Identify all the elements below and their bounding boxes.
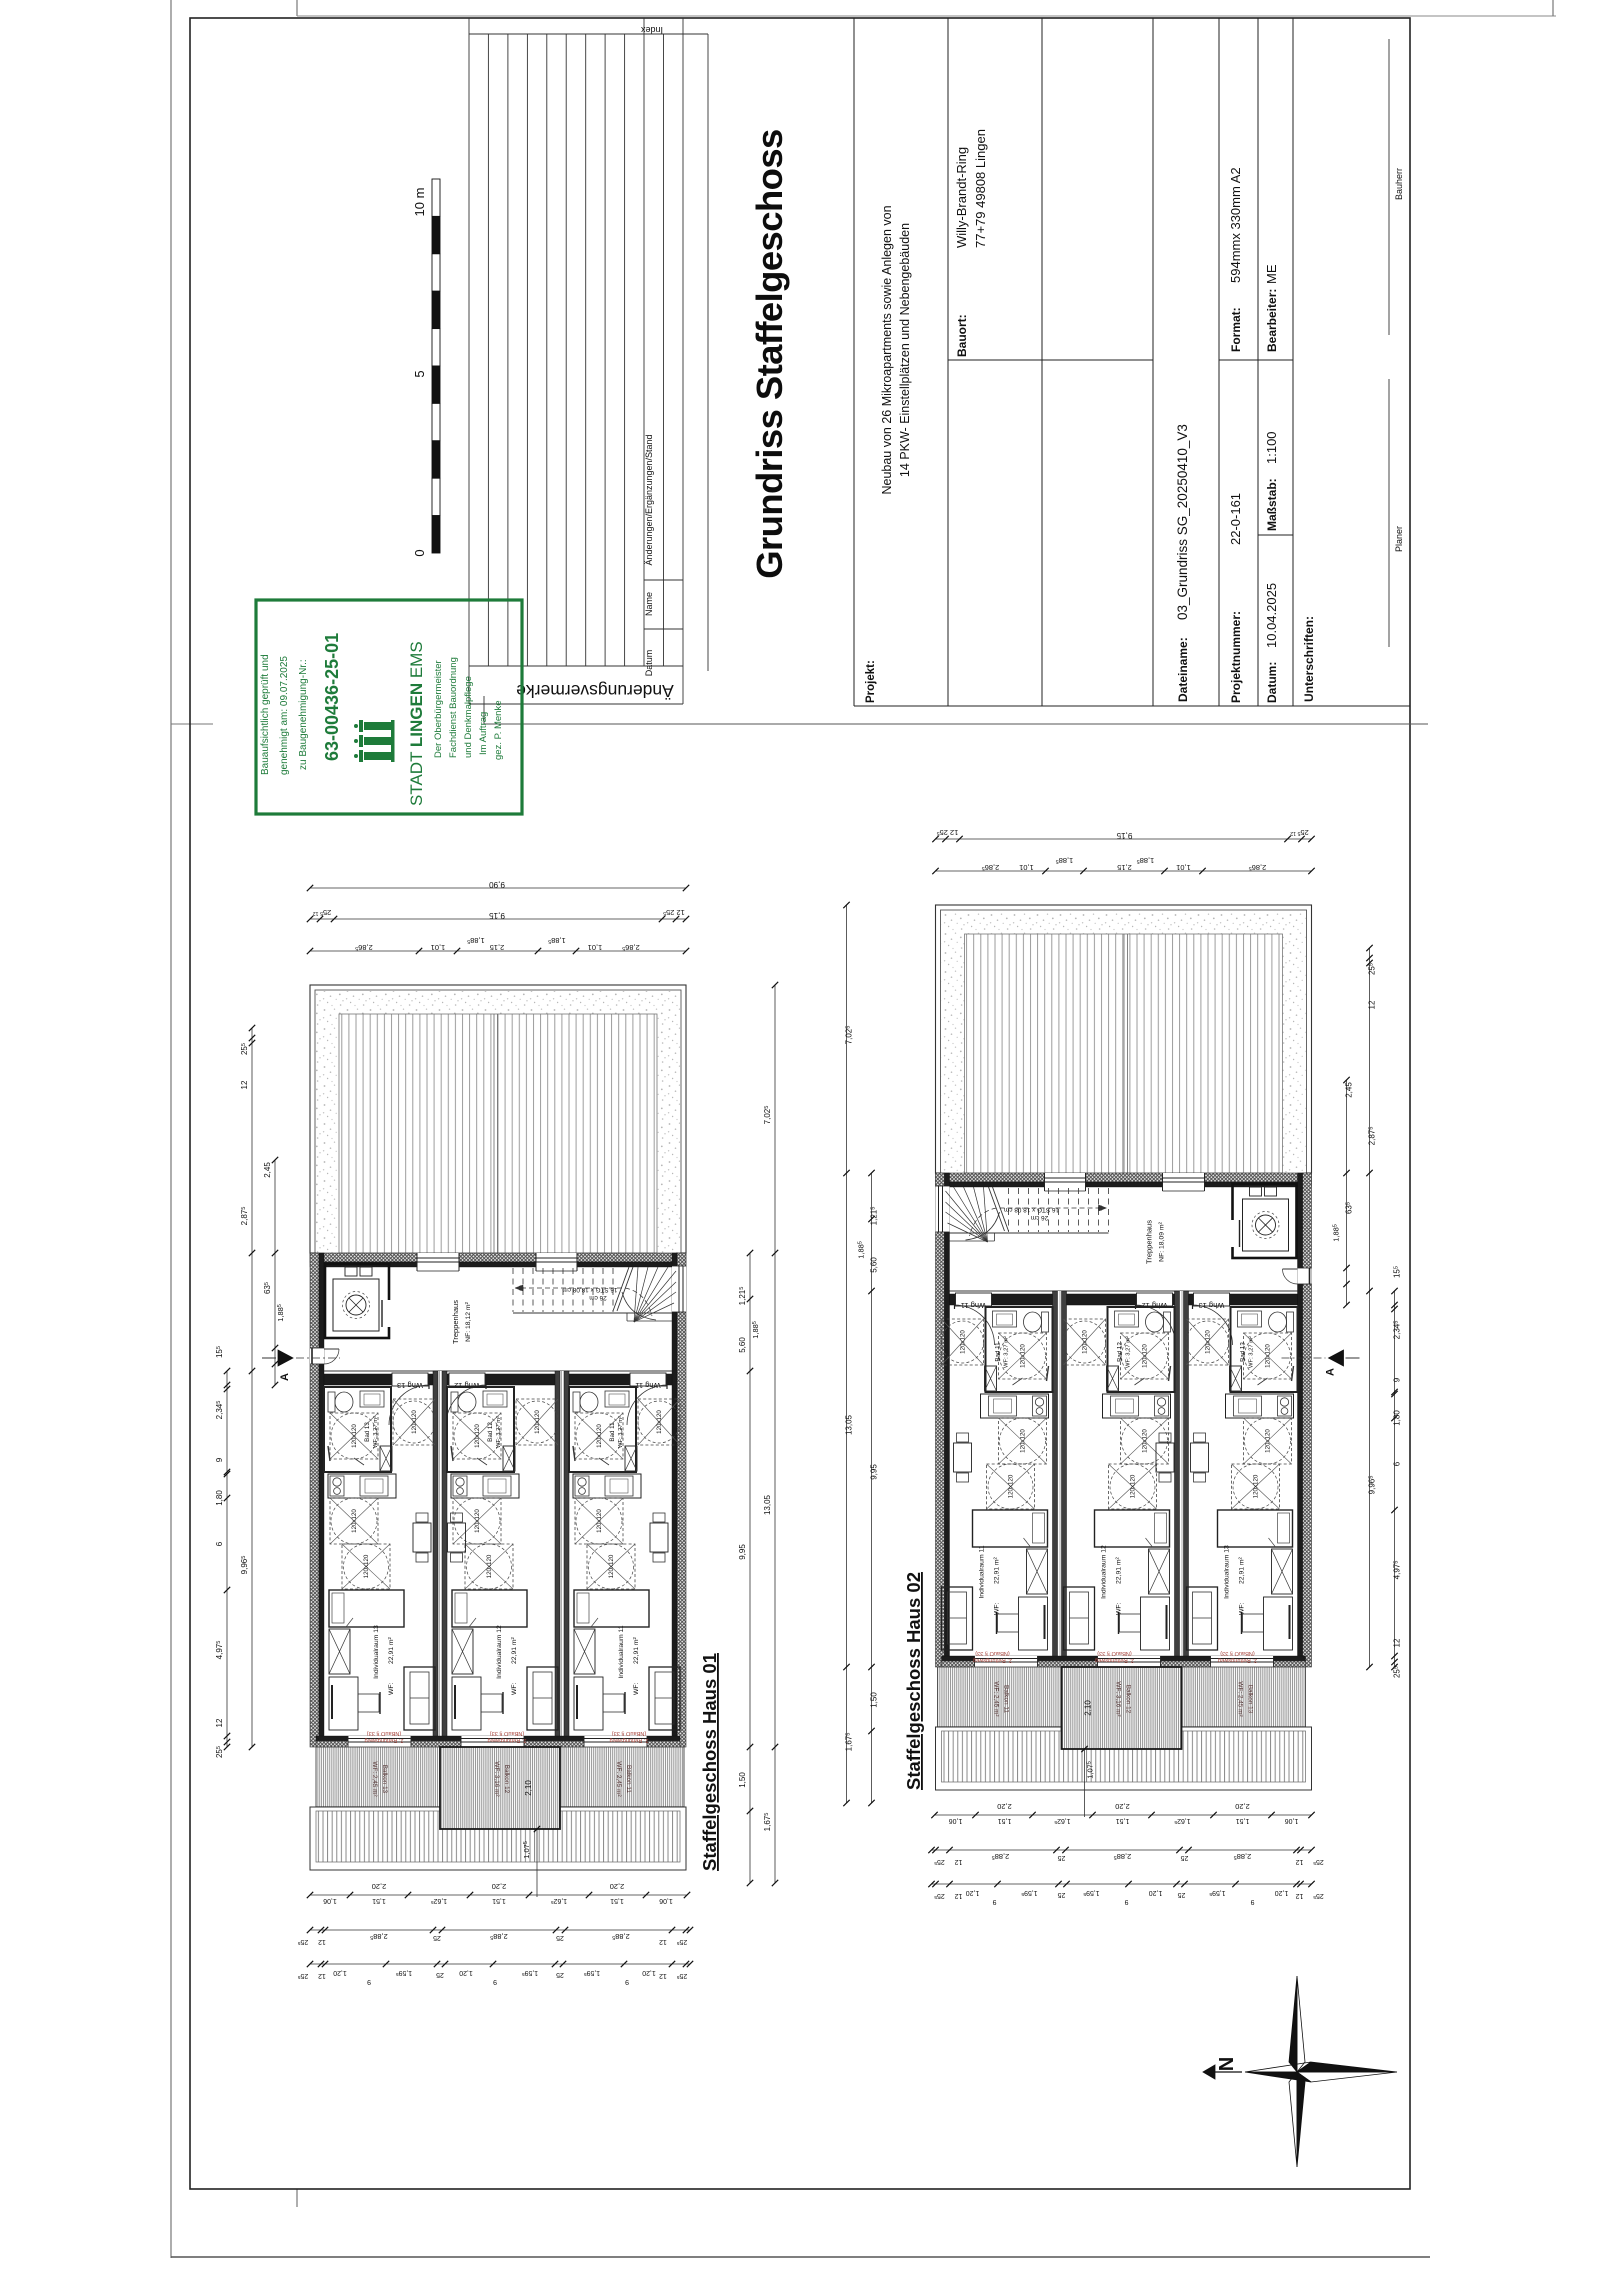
svg-text:1,20: 1,20 — [966, 1889, 980, 1896]
svg-text:WF: 2,45 m²: WF: 2,45 m² — [371, 1761, 378, 1796]
svg-text:Änderungsvermerke: Änderungsvermerke — [516, 681, 674, 701]
svg-text:2,20: 2,20 — [1235, 1802, 1250, 1811]
svg-text:0: 0 — [412, 549, 427, 556]
svg-text:120x120: 120x120 — [1082, 1330, 1089, 1354]
svg-text:120x120: 120x120 — [351, 1509, 358, 1533]
svg-text:Bad 12: Bad 12 — [487, 1422, 494, 1442]
svg-text:25: 25 — [1058, 1891, 1066, 1898]
svg-text:Änderungen/Ergänzungen/Stand: Änderungen/Ergänzungen/Stand — [644, 434, 654, 565]
svg-text:2. Rettungsweg: 2. Rettungsweg — [973, 1657, 1012, 1663]
svg-text:120x120: 120x120 — [1253, 1474, 1260, 1498]
svg-text:Neubau von 26 Mikroapartments: Neubau von 26 Mikroapartments sowie Anle… — [880, 205, 894, 494]
svg-text:2,45: 2,45 — [263, 1162, 272, 1178]
svg-text:(NBauO § 33): (NBauO § 33) — [490, 1730, 525, 1736]
svg-text:25: 25 — [556, 1934, 564, 1941]
svg-text:WF: 2,45 m²: WF: 2,45 m² — [993, 1681, 1000, 1716]
svg-text:120x120: 120x120 — [1265, 1429, 1272, 1453]
svg-text:12: 12 — [215, 1718, 224, 1727]
svg-text:Projektnummer:: Projektnummer: — [1229, 611, 1243, 703]
svg-text:12: 12 — [1296, 1858, 1304, 1865]
svg-text:120x120: 120x120 — [411, 1410, 418, 1434]
svg-text:WF: 3,27 m²: WF: 3,27 m² — [496, 1416, 502, 1448]
svg-text:WF: 3,27 m²: WF: 3,27 m² — [1126, 1336, 1132, 1368]
svg-text:1,51: 1,51 — [1116, 1817, 1130, 1824]
svg-text:1,01: 1,01 — [1019, 863, 1034, 872]
svg-text:Bad 11: Bad 11 — [609, 1422, 616, 1442]
svg-text:25: 25 — [433, 1934, 441, 1941]
svg-text:1,20: 1,20 — [1275, 1889, 1289, 1896]
svg-text:25: 25 — [1181, 1854, 1189, 1861]
svg-text:1,51: 1,51 — [492, 1897, 506, 1904]
svg-text:12: 12 — [955, 1892, 963, 1899]
svg-text:Individualraum 13: Individualraum 13 — [373, 1625, 380, 1679]
svg-text:2,20: 2,20 — [997, 1802, 1012, 1811]
svg-text:9,15: 9,15 — [489, 911, 505, 920]
svg-text:120x120: 120x120 — [486, 1554, 493, 1578]
svg-text:13,05: 13,05 — [845, 1414, 854, 1435]
svg-text:120x120: 120x120 — [474, 1424, 481, 1448]
svg-text:2,10: 2,10 — [524, 1780, 533, 1796]
svg-text:Whg 13: Whg 13 — [397, 1381, 423, 1390]
svg-text:Bauherr: Bauherr — [1394, 168, 1404, 200]
svg-text:25: 25 — [1058, 1854, 1066, 1861]
svg-text:1,80: 1,80 — [1393, 1410, 1402, 1426]
svg-text:Bauaufsichtlich geprüft und: Bauaufsichtlich geprüft und — [260, 654, 271, 775]
svg-text:2,45: 2,45 — [1345, 1082, 1354, 1098]
svg-text:Treppenhaus: Treppenhaus — [1145, 1220, 1154, 1264]
svg-text:WF:: WF: — [633, 1682, 640, 1695]
svg-text:WF:: WF: — [511, 1682, 518, 1695]
svg-text:120x120: 120x120 — [1020, 1429, 1027, 1453]
svg-text:10.04.2025: 10.04.2025 — [1264, 583, 1279, 648]
svg-text:Bearbeiter:: Bearbeiter: — [1265, 289, 1279, 352]
svg-text:1,01: 1,01 — [1176, 863, 1191, 872]
svg-text:Individualraum 11: Individualraum 11 — [618, 1625, 625, 1678]
svg-text:26 cm: 26 cm — [1031, 1214, 1048, 1221]
svg-text:WF: 3,27 m²: WF: 3,27 m² — [1249, 1336, 1255, 1368]
svg-text:Format:: Format: — [1229, 307, 1243, 352]
svg-text:1,01: 1,01 — [431, 943, 446, 952]
svg-text:WF: 3,16 m²: WF: 3,16 m² — [493, 1761, 500, 1796]
svg-text:77+79 49808 Lingen: 77+79 49808 Lingen — [973, 129, 988, 248]
svg-text:9: 9 — [367, 1978, 371, 1985]
svg-text:Individualraum 12: Individualraum 12 — [1101, 1545, 1108, 1599]
svg-text:26 cm: 26 cm — [589, 1294, 606, 1301]
svg-text:12: 12 — [318, 1972, 326, 1979]
svg-text:Bad 13: Bad 13 — [364, 1422, 371, 1442]
svg-text:1,20: 1,20 — [642, 1969, 656, 1976]
svg-text:5,60: 5,60 — [870, 1257, 879, 1273]
svg-text:2,15: 2,15 — [1117, 863, 1132, 872]
svg-text:Willy-Brandt-Ring: Willy-Brandt-Ring — [954, 147, 969, 248]
svg-text:1:100: 1:100 — [1264, 431, 1279, 464]
svg-text:Whg 12: Whg 12 — [1142, 1301, 1168, 1310]
svg-text:22,91 m²: 22,91 m² — [633, 1636, 640, 1664]
svg-text:120x120: 120x120 — [1142, 1344, 1149, 1368]
svg-text:Balkon 13: Balkon 13 — [1247, 1685, 1254, 1714]
svg-text:genehmigt am: 09.07.2025: genehmigt am: 09.07.2025 — [279, 656, 290, 775]
svg-text:1,50: 1,50 — [738, 1772, 747, 1788]
svg-text:Bad 12: Bad 12 — [1117, 1342, 1124, 1362]
svg-text:120x120: 120x120 — [656, 1410, 663, 1434]
svg-text:1,51: 1,51 — [372, 1897, 386, 1904]
svg-text:13,05: 13,05 — [763, 1494, 772, 1515]
svg-text:120x120: 120x120 — [608, 1554, 615, 1578]
svg-text:Dateiname:: Dateiname: — [1176, 637, 1190, 702]
svg-text:Planer: Planer — [1394, 526, 1404, 552]
svg-text:5,60: 5,60 — [738, 1337, 747, 1353]
svg-text:120x120: 120x120 — [363, 1554, 370, 1578]
svg-text:2,20: 2,20 — [492, 1882, 507, 1891]
svg-text:Bad 11: Bad 11 — [995, 1342, 1002, 1362]
svg-text:9,95: 9,95 — [738, 1544, 747, 1560]
svg-text:1,50: 1,50 — [870, 1692, 879, 1708]
svg-text:03_Grundriss SG_20250410_V3: 03_Grundriss SG_20250410_V3 — [1175, 424, 1190, 620]
svg-text:594mmx 330mm A2: 594mmx 330mm A2 — [1228, 167, 1243, 283]
svg-text:WF:: WF: — [1116, 1602, 1123, 1615]
svg-text:6: 6 — [215, 1541, 224, 1546]
svg-text:Name: Name — [644, 592, 654, 616]
svg-text:6: 6 — [1393, 1461, 1402, 1466]
svg-text:A: A — [279, 1373, 291, 1381]
svg-text:Bauort:: Bauort: — [955, 314, 969, 357]
svg-text:WF: 2,45 m²: WF: 2,45 m² — [615, 1761, 622, 1796]
svg-text:9: 9 — [1393, 1377, 1402, 1382]
svg-text:22,91 m²: 22,91 m² — [994, 1556, 1001, 1584]
svg-text:12: 12 — [318, 1938, 326, 1945]
svg-text:1,01: 1,01 — [588, 943, 603, 952]
svg-text:2,15: 2,15 — [490, 943, 505, 952]
svg-text:12 255: 12 255 — [663, 908, 685, 917]
svg-text:(NBauO § 33): (NBauO § 33) — [1097, 1650, 1132, 1656]
svg-text:2,20: 2,20 — [1115, 1802, 1130, 1811]
svg-text:WF: 3,27 m²: WF: 3,27 m² — [618, 1416, 624, 1448]
svg-text:Datum:: Datum: — [1265, 662, 1279, 703]
svg-text:120x120: 120x120 — [534, 1410, 541, 1434]
svg-text:2. Rettungsweg: 2. Rettungsweg — [365, 1737, 404, 1743]
svg-text:12: 12 — [659, 1972, 667, 1979]
svg-text:Whg 12: Whg 12 — [454, 1381, 480, 1390]
svg-text:2. Rettungsweg: 2. Rettungsweg — [610, 1737, 649, 1743]
svg-text:9: 9 — [215, 1457, 224, 1462]
svg-text:gez. P. Menke: gez. P. Menke — [493, 700, 504, 760]
svg-text:(NBauO § 33): (NBauO § 33) — [975, 1650, 1010, 1656]
svg-text:Index: Index — [640, 25, 663, 35]
svg-text:12: 12 — [659, 1938, 667, 1945]
svg-text:Staffelgeschoss Haus 02: Staffelgeschoss Haus 02 — [903, 1572, 924, 1790]
svg-text:Datum: Datum — [644, 650, 654, 677]
svg-text:25: 25 — [556, 1971, 564, 1978]
svg-text:12: 12 — [240, 1080, 249, 1089]
svg-text:120x120: 120x120 — [351, 1424, 358, 1448]
svg-text:(NBauO § 33): (NBauO § 33) — [1220, 1650, 1255, 1656]
svg-text:2,10: 2,10 — [1084, 1700, 1093, 1716]
svg-text:12: 12 — [955, 1858, 963, 1865]
svg-text:Whg 11: Whg 11 — [635, 1381, 660, 1390]
svg-text:1,20: 1,20 — [1149, 1889, 1163, 1896]
svg-text:2. Rettungsweg: 2. Rettungsweg — [488, 1737, 527, 1743]
svg-text:12 255: 12 255 — [937, 828, 959, 837]
svg-text:Projekt:: Projekt: — [865, 660, 877, 703]
svg-text:25: 25 — [1178, 1891, 1186, 1898]
svg-text:Whg 13: Whg 13 — [1199, 1301, 1225, 1310]
svg-text:1,06: 1,06 — [323, 1897, 337, 1904]
svg-text:22,91 m²: 22,91 m² — [388, 1636, 395, 1664]
svg-text:(NBauO § 33): (NBauO § 33) — [612, 1730, 647, 1736]
svg-text:16 STG x 18,08 cm: 16 STG x 18,08 cm — [562, 1286, 617, 1293]
svg-text:63-00436-25-01: 63-00436-25-01 — [322, 633, 342, 761]
svg-text:9,90: 9,90 — [489, 880, 505, 889]
svg-text:Whg 11: Whg 11 — [961, 1301, 986, 1310]
svg-text:Der Oberbürgermeister: Der Oberbürgermeister — [433, 660, 444, 758]
svg-text:Balkon 11: Balkon 11 — [625, 1765, 632, 1793]
svg-text:Individualraum 12: Individualraum 12 — [496, 1625, 503, 1679]
svg-text:ME: ME — [1264, 264, 1279, 284]
svg-text:120x120: 120x120 — [1020, 1344, 1027, 1368]
svg-text:WF:: WF: — [388, 1682, 395, 1695]
svg-text:12: 12 — [1296, 1892, 1304, 1899]
svg-text:Staffelgeschoss Haus 01: Staffelgeschoss Haus 01 — [699, 1653, 720, 1871]
svg-text:9: 9 — [625, 1978, 629, 1985]
svg-text:9,15: 9,15 — [1116, 831, 1132, 840]
svg-text:25: 25 — [436, 1971, 444, 1978]
svg-text:10 m: 10 m — [412, 188, 427, 217]
svg-text:2,20: 2,20 — [610, 1882, 625, 1891]
svg-text:WF: 2,45 m²: WF: 2,45 m² — [1237, 1681, 1244, 1716]
svg-text:STADT LINGEN EMS: STADT LINGEN EMS — [407, 641, 426, 806]
svg-text:1,51: 1,51 — [1236, 1817, 1250, 1824]
svg-text:WF: 3,16 m²: WF: 3,16 m² — [1115, 1681, 1122, 1716]
svg-text:1,06: 1,06 — [659, 1897, 673, 1904]
svg-text:zu Baugenehmigung-Nr.:: zu Baugenehmigung-Nr.: — [298, 659, 309, 770]
svg-text:und Denkmalpflege: und Denkmalpflege — [463, 676, 474, 758]
svg-text:N: N — [1216, 2057, 1238, 2071]
svg-text:1,51: 1,51 — [998, 1817, 1012, 1824]
svg-text:A: A — [1325, 1368, 1337, 1376]
svg-text:12: 12 — [1368, 1000, 1377, 1009]
svg-text:1,20: 1,20 — [333, 1969, 347, 1976]
svg-text:NF: 18,12 m²: NF: 18,12 m² — [465, 1301, 472, 1341]
svg-text:WF:: WF: — [994, 1602, 1001, 1615]
svg-text:14 PKW- Einstellplätzen und Ne: 14 PKW- Einstellplätzen und Nebengebäude… — [898, 223, 912, 477]
svg-text:WF: 3,27 m²: WF: 3,27 m² — [1004, 1336, 1010, 1368]
svg-text:9: 9 — [1124, 1898, 1128, 1905]
svg-text:2,20: 2,20 — [372, 1882, 387, 1891]
svg-text:9,95: 9,95 — [870, 1464, 879, 1480]
svg-text:1,51: 1,51 — [610, 1897, 624, 1904]
svg-text:Bad 13: Bad 13 — [1240, 1342, 1247, 1362]
svg-text:9: 9 — [992, 1898, 996, 1905]
svg-text:1,06: 1,06 — [949, 1817, 963, 1824]
svg-text:Unterschriften:: Unterschriften: — [1302, 616, 1316, 702]
svg-text:16 STG x 18,08 cm: 16 STG x 18,08 cm — [1004, 1206, 1059, 1213]
svg-text:22,91 m²: 22,91 m² — [511, 1636, 518, 1664]
svg-text:120x120: 120x120 — [474, 1509, 481, 1533]
svg-text:Im Auftrag: Im Auftrag — [478, 712, 489, 755]
svg-text:Maßstab:: Maßstab: — [1265, 478, 1279, 531]
svg-text:Individualraum 11: Individualraum 11 — [979, 1545, 986, 1598]
svg-text:Individualraum 13: Individualraum 13 — [1224, 1545, 1231, 1599]
svg-text:120x120: 120x120 — [596, 1509, 603, 1533]
svg-text:Balkon 13: Balkon 13 — [381, 1765, 388, 1794]
svg-text:1,20: 1,20 — [459, 1969, 473, 1976]
svg-text:5: 5 — [412, 370, 427, 377]
svg-text:2. Rettungsweg: 2. Rettungsweg — [1218, 1657, 1257, 1663]
svg-text:120x120: 120x120 — [1142, 1429, 1149, 1453]
svg-text:(NBauO § 33): (NBauO § 33) — [367, 1730, 402, 1736]
svg-text:9: 9 — [1250, 1898, 1254, 1905]
svg-text:12: 12 — [1393, 1638, 1402, 1647]
svg-text:120x120: 120x120 — [1130, 1474, 1137, 1498]
svg-text:120x120: 120x120 — [596, 1424, 603, 1448]
svg-text:120x120: 120x120 — [1205, 1330, 1212, 1354]
svg-text:WF: 3,27 m²: WF: 3,27 m² — [373, 1416, 379, 1448]
svg-text:1,06: 1,06 — [1285, 1817, 1299, 1824]
svg-text:120x120: 120x120 — [1265, 1344, 1272, 1368]
svg-text:22,91 m²: 22,91 m² — [1116, 1556, 1123, 1584]
svg-text:120x120: 120x120 — [960, 1330, 967, 1354]
svg-text:NF: 18,09 m²: NF: 18,09 m² — [1159, 1221, 1166, 1261]
svg-text:9: 9 — [493, 1978, 497, 1985]
svg-text:2. Rettungsweg: 2. Rettungsweg — [1095, 1657, 1134, 1663]
svg-text:Fachdienst Bauordnung: Fachdienst Bauordnung — [448, 657, 459, 758]
svg-text:Grundriss Staffelgeschoss: Grundriss Staffelgeschoss — [749, 129, 790, 579]
svg-text:WF:: WF: — [1239, 1602, 1246, 1615]
svg-text:Treppenhaus: Treppenhaus — [451, 1300, 460, 1344]
svg-text:Balkon 12: Balkon 12 — [503, 1765, 510, 1794]
svg-text:22-0-161: 22-0-161 — [1228, 493, 1243, 545]
svg-text:120x120: 120x120 — [1008, 1474, 1015, 1498]
svg-text:22,91 m²: 22,91 m² — [1239, 1556, 1246, 1584]
svg-text:Balkon 11: Balkon 11 — [1003, 1685, 1010, 1713]
svg-text:Balkon 12: Balkon 12 — [1125, 1685, 1132, 1714]
svg-text:1,80: 1,80 — [215, 1490, 224, 1506]
